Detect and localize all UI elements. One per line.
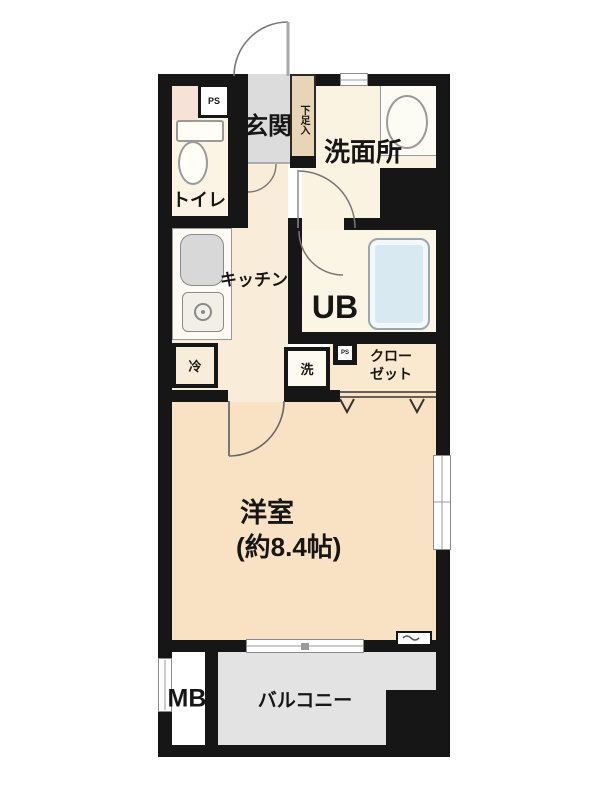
western-room-floor [172,390,436,640]
washroom-label: 洗面所 [324,139,402,165]
refrigerator-space: 冷 [172,343,218,388]
window-washroom-top [340,73,368,86]
wall-room-top-left [158,390,228,402]
wall-vent-box [396,631,432,646]
meter-box-label: MB [168,687,207,712]
shoe-cabinet-label: 下足入 [298,105,308,135]
balcony-label: バルコニー [258,692,353,711]
toilet-bowl [178,141,208,185]
closet-label-line2: ゼット [370,367,412,381]
pipe-space-closet: PS [333,341,357,365]
wall-meter-box-right [205,640,218,745]
wall-room-bottom-left [158,640,246,652]
wall-shoe-cabinet-stub [290,156,316,168]
unit-bath-label: UB [312,291,358,323]
window-room-right [433,455,451,550]
wall-ub-bottom [288,332,436,344]
pipe-space-toilet: PS [198,84,230,118]
wall-toilet-bottom [158,216,248,228]
kitchen-label: キッチン [220,272,288,289]
wall-right-upper [436,74,450,455]
window-balcony-sliding [246,639,364,653]
bathtub [368,238,430,330]
kitchen-stove-burner-dot [201,310,205,314]
balcony-block [386,690,436,745]
floor-plan: PS 冷 洗 PS [0,0,600,800]
toilet-floor-accent [172,86,198,120]
duct-shaft [380,168,436,230]
western-room-size: (約8.4帖) [236,531,341,564]
kitchen-sink [180,234,224,286]
wall-room-top-mid [284,390,340,402]
corridor-floor [248,163,288,228]
wall-left-upper [158,74,172,658]
entrance-label: 玄関 [244,115,292,139]
wall-toilet-right [228,86,248,228]
wall-bottom [158,745,450,757]
washer-space: 洗 [284,347,330,390]
toilet-tank [176,120,224,142]
closet-label-line1: クロー [370,349,412,363]
western-room-label: 洋室 [240,497,294,531]
wall-ub-top-left [288,218,302,230]
wall-ub-left [288,230,302,332]
wall-right-lower [436,550,450,757]
wall-top-mid [316,74,340,86]
toilet-label: トイレ [172,191,226,209]
wall-ub-top-right [344,218,380,230]
